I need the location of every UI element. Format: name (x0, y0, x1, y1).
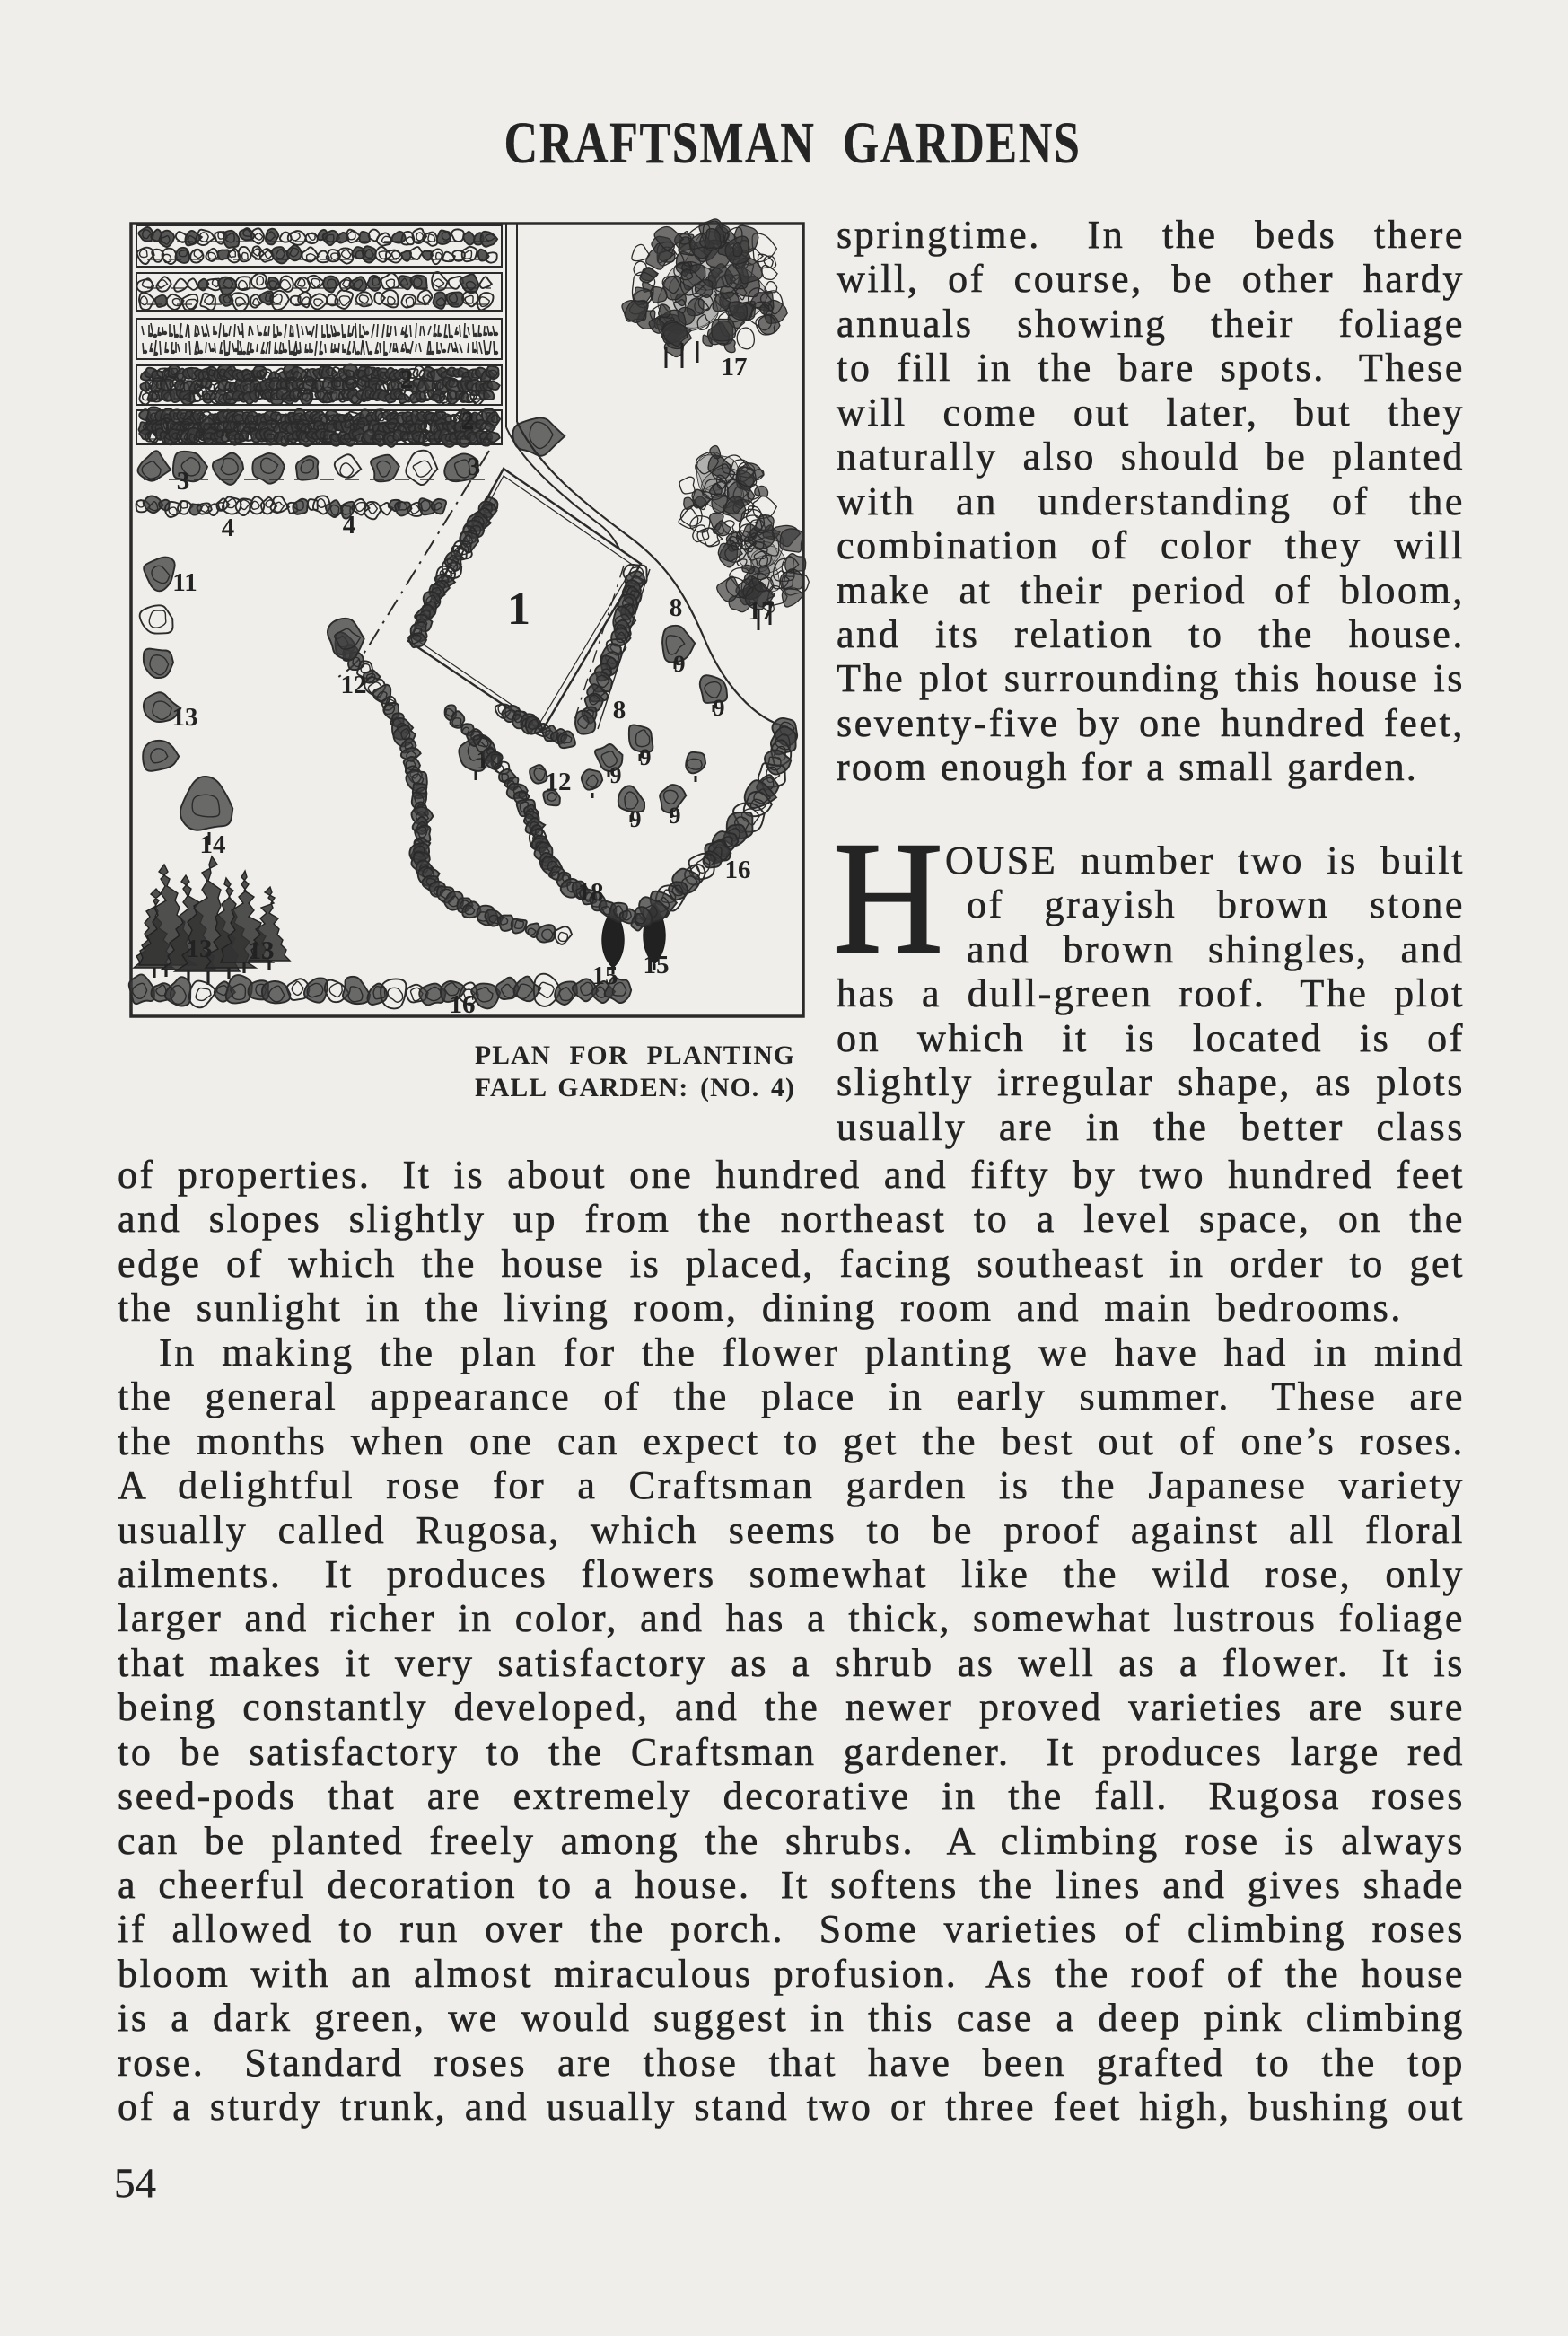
svg-text:15: 15 (592, 962, 618, 990)
svg-text:16: 16 (725, 856, 751, 884)
svg-text:9: 9 (674, 651, 686, 677)
svg-text:9: 9 (714, 695, 725, 721)
svg-text:9: 9 (640, 744, 652, 770)
svg-text:9: 9 (670, 803, 681, 829)
svg-text:3: 3 (468, 452, 481, 481)
svg-text:2: 2 (461, 407, 475, 435)
svg-text:4: 4 (343, 511, 356, 540)
svg-text:9: 9 (630, 806, 642, 832)
svg-text:13: 13 (172, 703, 198, 732)
svg-text:1: 1 (507, 584, 530, 635)
svg-text:15: 15 (644, 951, 670, 979)
svg-text:13: 13 (187, 935, 213, 963)
svg-text:13: 13 (249, 936, 275, 965)
svg-text:9: 9 (610, 762, 622, 788)
svg-text:2: 2 (400, 365, 414, 394)
svg-text:4: 4 (222, 514, 235, 542)
svg-text:14: 14 (200, 830, 226, 859)
svg-text:16: 16 (450, 990, 476, 1019)
svg-text:18: 18 (578, 878, 604, 907)
svg-text:3: 3 (177, 467, 190, 496)
svg-text:17: 17 (749, 597, 775, 626)
svg-text:17: 17 (722, 353, 748, 382)
svg-text:12: 12 (341, 671, 367, 699)
svg-text:11: 11 (172, 568, 197, 597)
svg-text:8: 8 (613, 696, 626, 725)
svg-text:8: 8 (670, 593, 683, 622)
